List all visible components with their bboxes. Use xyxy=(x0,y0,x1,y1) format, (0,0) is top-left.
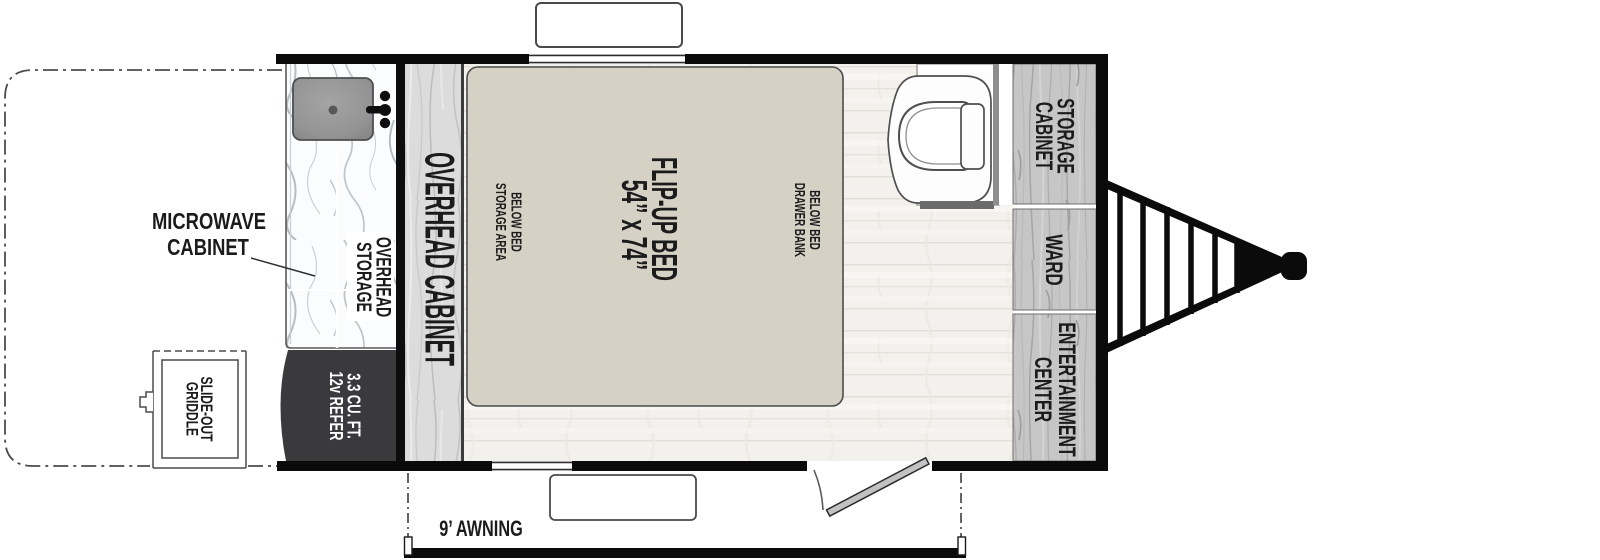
svg-text:WARD: WARD xyxy=(1040,234,1067,285)
svg-text:CABINET: CABINET xyxy=(1030,102,1056,171)
svg-text:FLIP-UP BED: FLIP-UP BED xyxy=(643,157,683,281)
svg-text:MICROWAVE: MICROWAVE xyxy=(152,209,266,234)
svg-text:CABINET: CABINET xyxy=(167,235,249,260)
svg-text:BELOW BED: BELOW BED xyxy=(806,190,823,250)
svg-text:CENTER: CENTER xyxy=(1029,357,1055,422)
svg-text:ENTERTAINMENT: ENTERTAINMENT xyxy=(1053,322,1079,457)
svg-text:9’ AWNING: 9’ AWNING xyxy=(439,516,522,541)
svg-text:BELOW BED: BELOW BED xyxy=(508,192,525,252)
svg-text:OVERHEAD CABINET: OVERHEAD CABINET xyxy=(416,152,463,366)
svg-text:DRAWER BANK: DRAWER BANK xyxy=(791,183,808,258)
svg-text:GRIDDLE: GRIDDLE xyxy=(182,382,200,436)
svg-text:STORAGE: STORAGE xyxy=(352,242,376,312)
svg-text:12v REFER: 12v REFER xyxy=(325,371,345,440)
svg-text:STORAGE AREA: STORAGE AREA xyxy=(492,183,509,261)
